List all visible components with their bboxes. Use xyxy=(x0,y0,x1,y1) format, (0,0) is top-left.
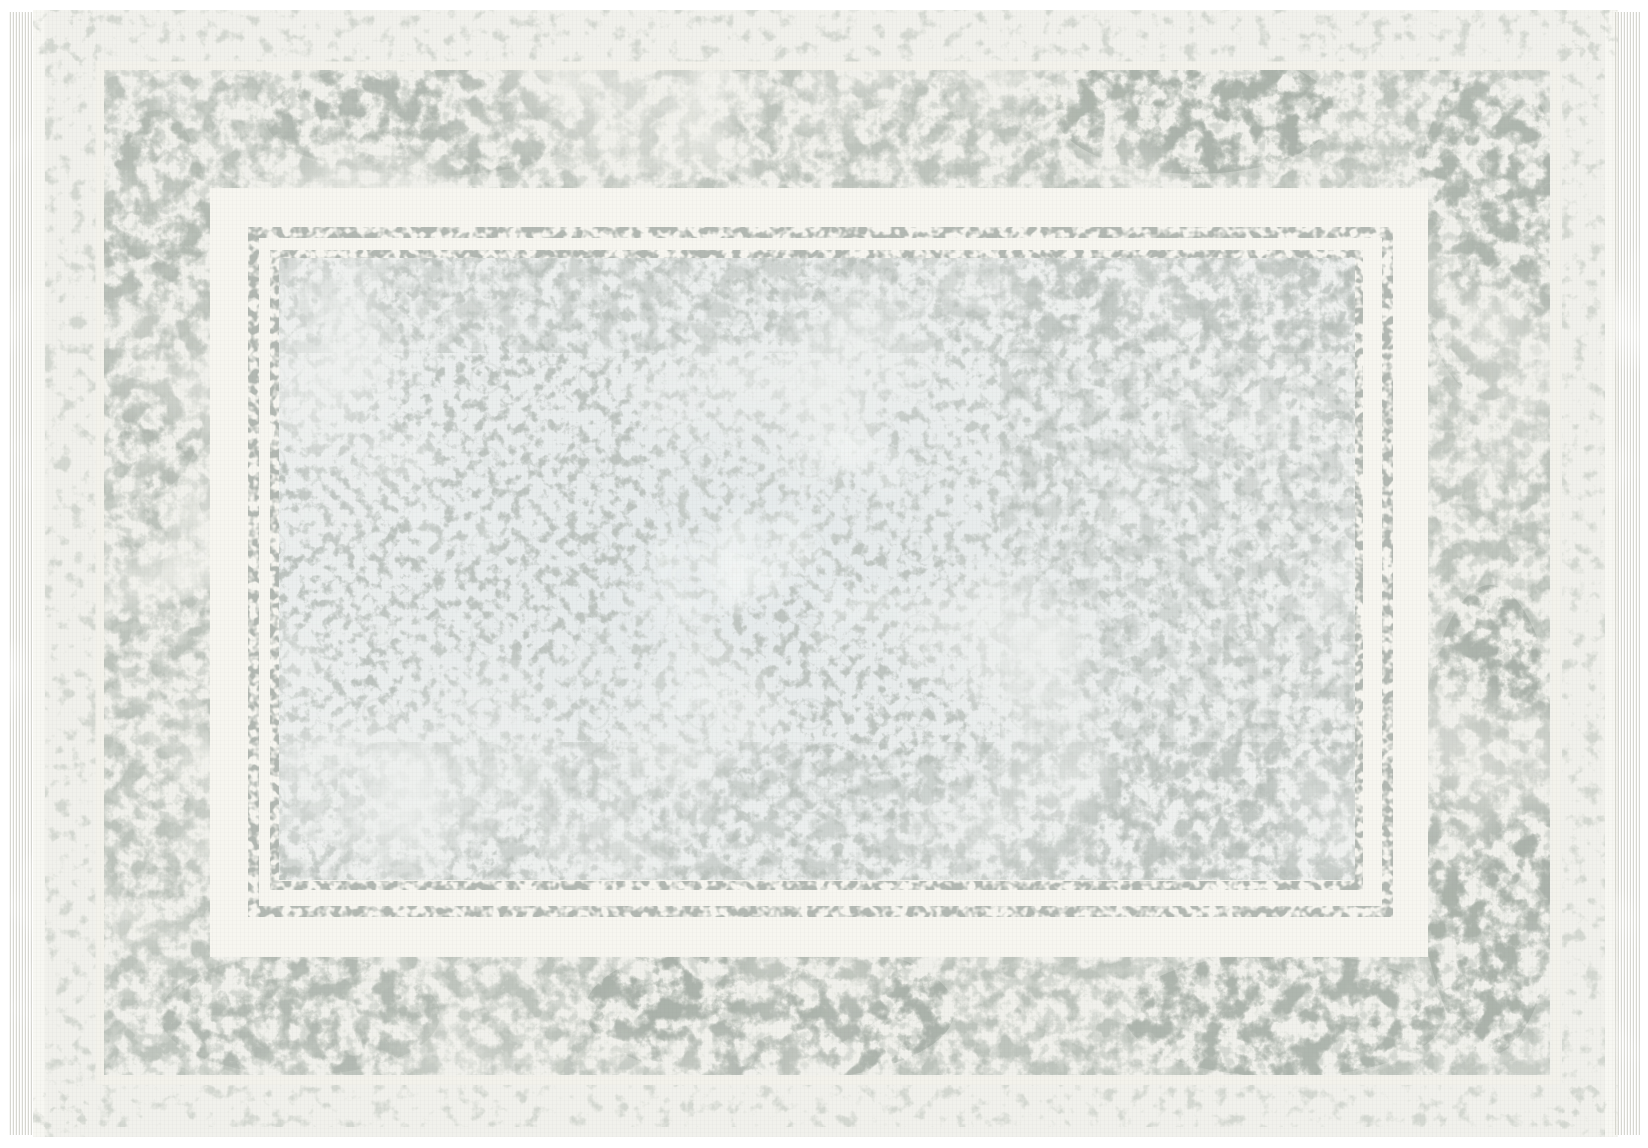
weave-texture-horizontal xyxy=(33,10,1618,1137)
fringe-erosion-right xyxy=(1615,12,1640,1135)
rug xyxy=(33,10,1618,1137)
product-photo xyxy=(0,0,1648,1148)
rug-photo-svg xyxy=(0,0,1648,1148)
fringe-erosion-left xyxy=(8,12,33,1135)
